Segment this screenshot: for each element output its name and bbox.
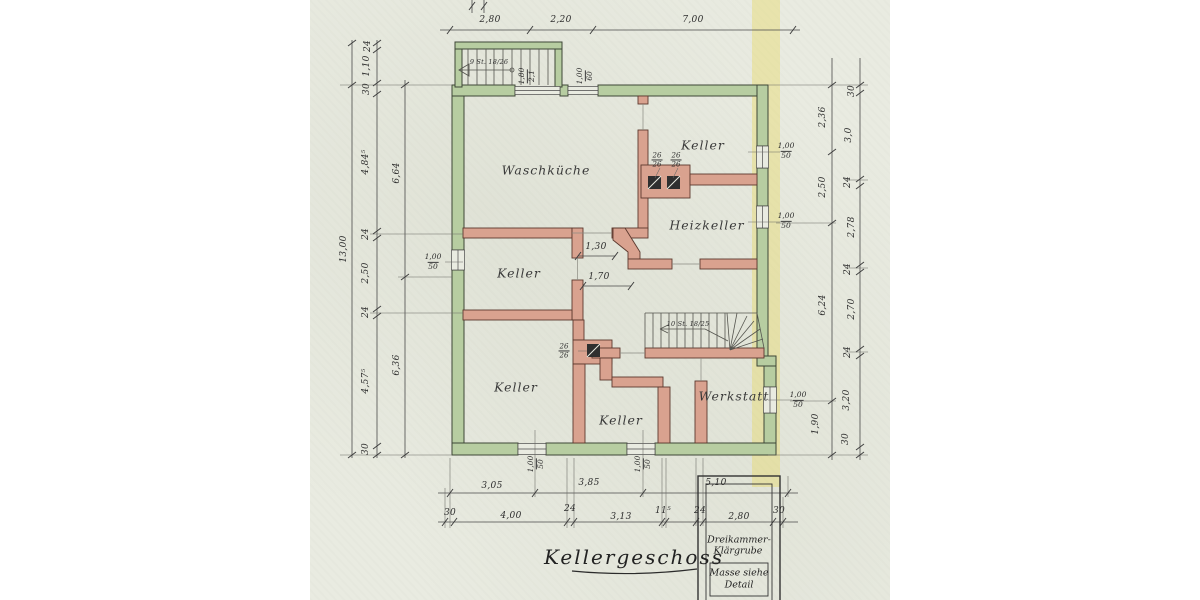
dim-label: 7,00 bbox=[682, 15, 703, 25]
dim-label: 4,00 bbox=[500, 511, 521, 521]
window-size-label: 1,0050 bbox=[778, 212, 795, 230]
window-size-label: 1,0050 bbox=[634, 456, 652, 473]
klaergrube-note: Detail bbox=[725, 580, 754, 591]
interior-stair bbox=[645, 313, 764, 350]
dim-total-height: 13,00 bbox=[339, 235, 349, 262]
dim-label: 24 bbox=[363, 40, 373, 52]
dim-label: 3,0 bbox=[844, 127, 854, 142]
dim-label: 11⁵ bbox=[655, 506, 671, 516]
dim-label: 3,13 bbox=[610, 512, 631, 522]
room-label-keller: Keller bbox=[494, 380, 538, 395]
dim-label: 6,36 bbox=[392, 354, 402, 375]
dim-label: 30 bbox=[444, 508, 456, 518]
dim-label: 24 bbox=[564, 504, 576, 514]
dim-label: 3,20 bbox=[842, 389, 852, 410]
dim-label: 24 bbox=[843, 263, 853, 275]
title-underline bbox=[572, 569, 697, 574]
klaergrube-label: Klärgrube bbox=[714, 546, 763, 557]
room-label-heizkeller: Heizkeller bbox=[669, 218, 744, 233]
dim-label: 1,30 bbox=[585, 242, 606, 252]
floorplan-drawing bbox=[0, 0, 1200, 600]
dim-label: 6,64 bbox=[392, 162, 402, 183]
klaergrube-label: Dreikammer- bbox=[707, 535, 771, 546]
dim-label: 30 bbox=[773, 506, 785, 516]
dim-label: 30 bbox=[361, 443, 371, 455]
dim-label: 1,90 bbox=[811, 413, 821, 434]
dim-label: 24 bbox=[843, 176, 853, 188]
room-label-werkstatt: Werkstatt bbox=[699, 389, 770, 404]
dim-label: 24 bbox=[843, 346, 853, 358]
stair-annotation: 9 St. 18/26 bbox=[470, 58, 508, 66]
stair-annotation: 10 St. 18/25 bbox=[667, 320, 710, 328]
dim-label: 2,70 bbox=[847, 298, 857, 319]
dim-label: 2,36 bbox=[818, 106, 828, 127]
dim-label: 2,78 bbox=[847, 216, 857, 237]
dim-label: 30 bbox=[362, 83, 372, 95]
dim-label: 6,24 bbox=[818, 294, 828, 315]
room-label-waschkueche: Waschküche bbox=[502, 163, 591, 178]
dim-label: 2,50 bbox=[361, 262, 371, 283]
room-label-keller: Keller bbox=[681, 138, 725, 153]
dim-label: 24 bbox=[361, 306, 371, 318]
dim-label: 2,80 bbox=[479, 15, 500, 25]
dim-label: 1,10 bbox=[362, 55, 372, 76]
chimney-size-label: 2626 bbox=[559, 342, 570, 359]
dim-label: 30 bbox=[841, 433, 851, 445]
dim-label: 1,70 bbox=[588, 272, 609, 282]
door-size-label: 1,802,1 bbox=[518, 68, 536, 85]
window-size-label: 1,0050 bbox=[778, 142, 795, 160]
dim-label: 24 bbox=[694, 506, 706, 516]
dim-label: 2,80 bbox=[728, 512, 749, 522]
dim-label: 2,20 bbox=[550, 15, 571, 25]
window-size-label: 1,0050 bbox=[425, 253, 442, 271]
dim-label: 4,84⁵ bbox=[361, 149, 371, 174]
dim-label: 5,10 bbox=[705, 478, 726, 488]
dim-label: 3,85 bbox=[578, 478, 599, 488]
dim-label: 30 bbox=[847, 85, 857, 97]
drawing-title: Kellergeschoss bbox=[544, 545, 724, 569]
window-size-label: 1,0050 bbox=[527, 456, 545, 473]
scanned-floorplan-page: 2,80 2,20 7,00 13,00 24 1,10 30 4,84⁵ 24… bbox=[0, 0, 1200, 600]
window-size-label: 1,0050 bbox=[790, 391, 807, 409]
room-label-keller: Keller bbox=[599, 413, 643, 428]
dim-label: 4,57⁵ bbox=[361, 368, 371, 393]
dim-label: 3,05 bbox=[481, 481, 502, 491]
dim-label: 2,50 bbox=[818, 176, 828, 197]
room-label-keller: Keller bbox=[497, 266, 541, 281]
window-size-label: 1,0060 bbox=[576, 68, 594, 85]
chimney-size-label: 2626 bbox=[671, 151, 682, 168]
dim-label: 24 bbox=[361, 228, 371, 240]
klaergrube-note: Masse siehe bbox=[709, 568, 768, 579]
chimney-size-label: 2626 bbox=[652, 151, 663, 168]
